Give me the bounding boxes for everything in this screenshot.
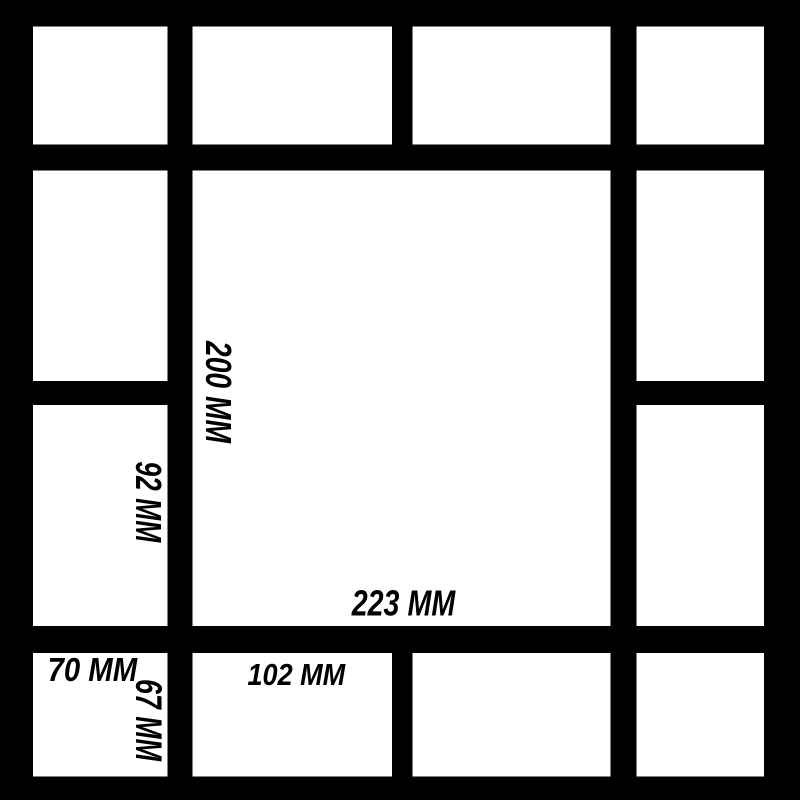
svg-text:70 MM: 70 MM [48, 652, 139, 689]
svg-text:223 MM: 223 MM [351, 584, 456, 624]
svg-text:102 MM: 102 MM [248, 657, 347, 692]
svg-text:200 MM: 200 MM [198, 340, 239, 443]
svg-text:92 MM: 92 MM [128, 461, 169, 543]
svg-text:67 MM: 67 MM [128, 679, 169, 762]
